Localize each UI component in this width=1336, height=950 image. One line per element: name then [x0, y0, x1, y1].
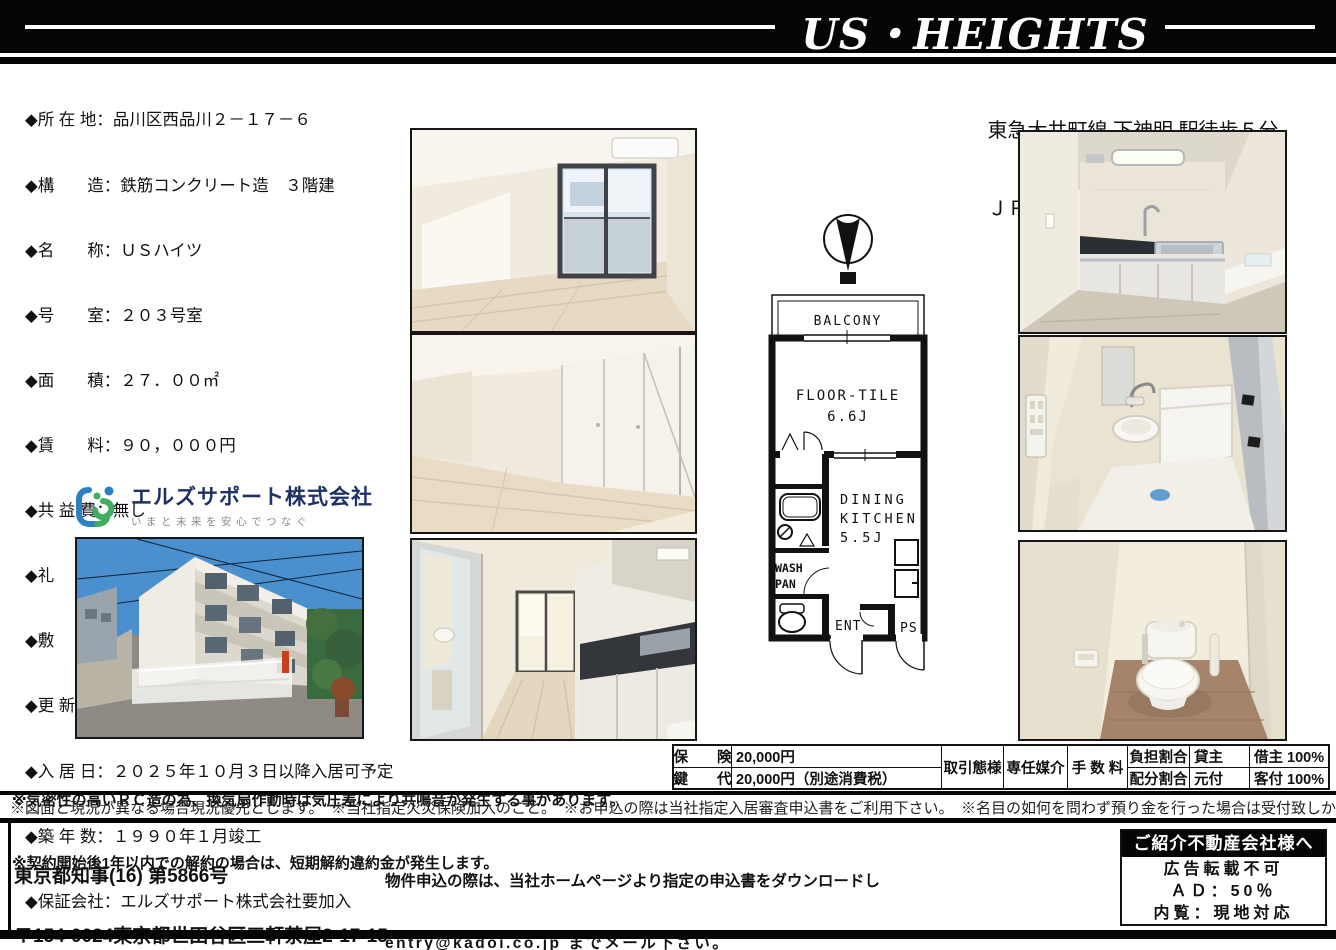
spec-line: ◆名 称：ＵＳハイツ [25, 241, 405, 263]
guarantor-logo: エルズサポート株式会社 いまと未来を安心でつなぐ [73, 481, 373, 531]
key-fee-value: 20,000円（別途消費税） [732, 768, 942, 789]
photo-toilet [1018, 540, 1287, 741]
photo-hallway-kitchen [410, 538, 697, 741]
application-line-1: 物件申込の際は、当社ホームページより指定の申込書をダウンロードし [385, 872, 1081, 893]
building-exterior-illustration [77, 539, 362, 737]
room2-label-1: DINING [840, 492, 907, 508]
footer-left-rule [8, 823, 11, 933]
split-ratio-label: 配分割合 [1128, 768, 1190, 789]
agency-license: 東京都知事(16) 第5866号 [14, 865, 388, 888]
banner-rule-left [25, 25, 775, 29]
referral-line-1: 広告転載不可 [1122, 859, 1325, 881]
washpan-label-1: WASH [775, 561, 803, 575]
guarantor-logo-icon [73, 481, 123, 531]
room2-size-label: 5.5J [840, 530, 885, 546]
transaction-type-value: 専任媒介 [1004, 746, 1068, 789]
photo-bathroom [1018, 335, 1287, 532]
balcony-label: BALCONY [814, 314, 883, 329]
guarantor-company-name: エルズサポート株式会社 [131, 481, 373, 511]
living-room-illustration [412, 130, 695, 331]
room1-label: FLOOR-TILE [796, 388, 900, 404]
referral-header: ご紹介不動産会社様へ [1122, 831, 1325, 857]
banner-underline [0, 57, 1336, 64]
toilet-illustration [1020, 542, 1285, 739]
entrance-label: ENT [835, 619, 861, 634]
spec-line: ◆賃 料：９０，０００円 [25, 436, 405, 458]
spec-line: ◆号 室：２０３号室 [25, 306, 405, 328]
banner-rule-right [1165, 25, 1315, 29]
referral-line-2: ＡＤ：50％ [1122, 881, 1325, 903]
guarantor-tagline: いまと未来を安心でつなぐ [131, 514, 373, 529]
photo-bedroom-closet [410, 333, 697, 534]
referral-line-3: 内覧：現地対応 [1122, 903, 1325, 925]
disclaimer-line: ※図面と現況が異なる場合現況優先とします。 ※当社指定火災保険加入のこと。 ※お… [10, 797, 1336, 818]
room2-label-2: KITCHEN [840, 511, 918, 527]
bathroom-illustration [1020, 337, 1285, 530]
insurance-value: 20,000円 [732, 746, 942, 768]
insurance-label: 保 険 [674, 746, 732, 768]
key-fee-label: 鍵 代 [674, 768, 732, 789]
spec-line: ◆面 積：２７．００㎡ [25, 371, 405, 393]
washpan-label-2: PAN [775, 577, 796, 591]
title-banner: US・HEIGHTS [0, 0, 1336, 53]
photo-building-exterior [75, 537, 364, 739]
burden-party: 貸主 [1190, 746, 1250, 768]
spec-line: ◆構 造：鉄筋コンクリート造 ３階建 [25, 176, 405, 198]
footer-bottom-rule [0, 930, 1336, 939]
photo-kitchen [1018, 130, 1287, 334]
photo-living-room [410, 128, 697, 333]
spec-line: ◆所 在 地：品川区西品川２－１７－６ [25, 110, 405, 132]
split-party: 元付 [1190, 768, 1250, 789]
hallway-illustration [412, 540, 695, 739]
split-value: 客付 100% [1250, 768, 1329, 789]
divider-top [0, 791, 1336, 795]
referral-agency-box: ご紹介不動産会社様へ 広告転載不可 ＡＤ：50％ 内覧：現地対応 [1120, 829, 1327, 926]
divider-mid [0, 818, 1336, 823]
burden-value: 借主 100% [1250, 746, 1329, 768]
burden-ratio-label: 負担割合 [1128, 746, 1190, 768]
kitchen-illustration [1020, 132, 1285, 332]
property-flyer: US・HEIGHTS 東急大井町線 下神明 駅徒歩５分 ＪＲ山の手線 大崎 駅徒… [0, 0, 1336, 950]
ps-label: PS [900, 621, 918, 636]
floorplan-drawing: BALCONY FLOOR-TILE 6.6J [742, 192, 1004, 704]
commission-label: 手 数 料 [1068, 746, 1128, 789]
transaction-type-label: 取引態様 [942, 746, 1004, 789]
bedroom-illustration [412, 335, 695, 532]
floorplan: BALCONY FLOOR-TILE 6.6J [742, 192, 1004, 704]
fee-table: 保 険 20,000円 取引態様 専任媒介 手 数 料 負担割合 貸主 借主 1… [672, 744, 1330, 790]
building-title: US・HEIGHTS [800, 1, 1150, 62]
room1-size-label: 6.6J [827, 409, 869, 425]
north-arrow-icon [824, 215, 872, 284]
